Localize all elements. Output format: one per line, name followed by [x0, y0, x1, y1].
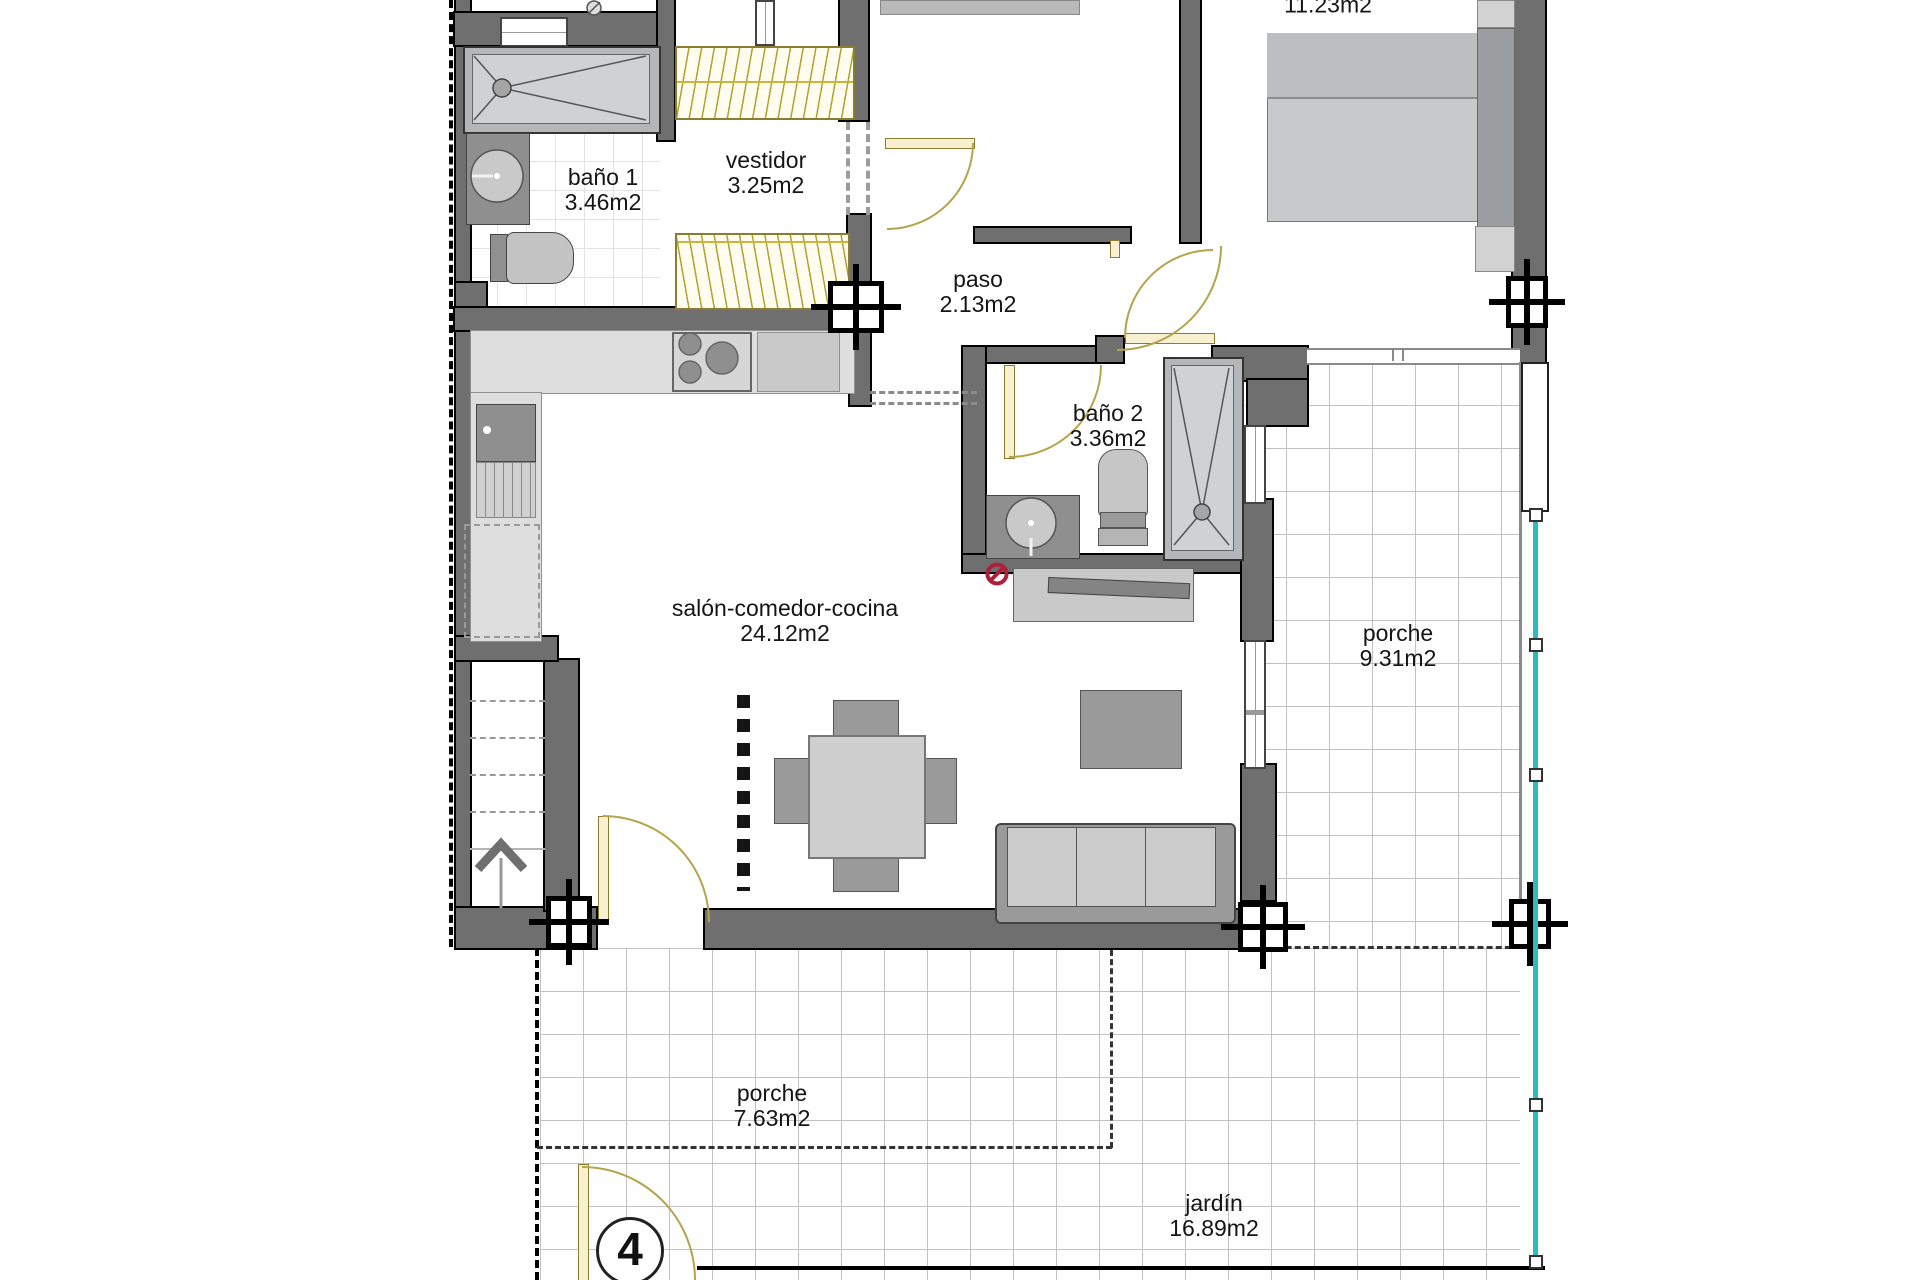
bed-sheet-band: [1267, 33, 1477, 99]
porche-frontal-boundary-right: [1110, 950, 1113, 1148]
room-label-porche-frontal: porche7.63m2: [734, 1081, 811, 1131]
column-symbol-paso: [828, 281, 884, 333]
porche-frontal-boundary-bottom: [537, 1146, 1112, 1149]
stair-tread-5: [470, 848, 545, 850]
garden-paving: [540, 948, 1520, 1280]
beam-dash-1: [870, 391, 977, 394]
bano1-toilet-bowl: [506, 232, 574, 284]
kitchen-dishwasher-dashed: [464, 524, 540, 638]
wall-right-low: [1242, 765, 1275, 900]
wall-corner-step: [1248, 380, 1307, 425]
garden-railing: [1533, 510, 1538, 1265]
vestidor-door-leaf: [885, 138, 975, 149]
railing-post: [1529, 1255, 1543, 1269]
railing-post: [1529, 508, 1543, 522]
nightstand-bottom: [1475, 226, 1515, 272]
bed-headboard: [1477, 28, 1515, 228]
bano2-sink-unit: [986, 495, 1080, 559]
porch-railing-tick2: [1402, 348, 1404, 361]
railing-post: [1529, 638, 1543, 652]
garden-gate-leaf: [578, 1164, 589, 1280]
room-label-vestidor: vestidor3.25m2: [726, 148, 807, 198]
stair-tread-3: [470, 774, 545, 776]
stair-tread-4: [470, 811, 545, 813]
porch-railing-top: [1307, 348, 1520, 365]
porch-corner-column: [1521, 362, 1549, 512]
kitchen-cooktop: [672, 332, 752, 392]
dining-table: [808, 735, 926, 859]
window-bano2-right: [1244, 425, 1266, 504]
room-divider-dotted-line: [737, 695, 750, 891]
dining-chair-top: [833, 700, 899, 740]
wardrobe-top: [675, 46, 855, 120]
room-label-bano2: baño 23.36m2: [1070, 401, 1147, 451]
top-room-furniture: [880, 0, 1080, 15]
sofa-cushion-2: [1076, 827, 1147, 907]
shower1-tray-inner: [472, 54, 650, 124]
paso-floor: [868, 0, 1181, 348]
dining-chair-left: [774, 758, 812, 824]
railing-post: [1529, 768, 1543, 782]
wall-dormitorio-left: [1181, 0, 1200, 242]
wall-right-mid: [1242, 500, 1272, 640]
bano2-paso-door-leaf: [1125, 333, 1215, 344]
nightstand-top: [1477, 0, 1515, 28]
garden-front-wall-line: [697, 1266, 1545, 1270]
bano2-door-leaf: [1004, 365, 1015, 459]
top-wall-vent-window: [755, 0, 775, 46]
stair-tread-2: [470, 737, 545, 739]
column-symbol-bedroom-right: [1506, 276, 1548, 328]
bano1-sink-unit: [466, 133, 530, 225]
stair-tread-1: [470, 700, 545, 702]
kitchen-oven: [757, 332, 840, 392]
entrance-door-leaf: [598, 816, 609, 924]
room-label-dormitorio: 11.23m2: [1284, 0, 1372, 18]
sofa-cushion-1: [1007, 827, 1078, 907]
room-label-bano1: baño 13.46m2: [565, 165, 642, 215]
wall-wing-right: [1513, 0, 1545, 278]
property-boundary-left: [449, 0, 453, 947]
floor-plan: baño 13.46m2 vestidor3.25m2 paso2.13m2 1…: [0, 0, 1920, 1280]
wall-bano2-top: [963, 347, 1111, 362]
property-boundary-left-lower: [535, 948, 539, 1280]
column-symbol-entry: [546, 896, 592, 948]
room-label-paso: paso2.13m2: [940, 267, 1017, 317]
unit-number-badge: 4: [596, 1217, 664, 1280]
wall-stairs-right: [545, 660, 578, 910]
bano2-toilet-bowl: [1098, 449, 1148, 517]
porch-railing-tick: [1392, 348, 1394, 361]
bano2-toilet-tank: [1098, 528, 1148, 546]
kitchen-sink-unit: [476, 404, 536, 462]
room-label-salon: salón-comedor-cocina24.12m2: [672, 596, 898, 646]
bano2-toilet-seat: [1100, 512, 1146, 528]
shower2-tray-inner: [1171, 365, 1234, 551]
sofa-cushion-3: [1145, 827, 1216, 907]
dormitorio-door-leaf: [1110, 240, 1120, 258]
column-symbol-salon-corner: [1238, 902, 1288, 952]
wall-dormitorio-bottom: [975, 228, 1130, 242]
window-bano1-top: [500, 17, 568, 47]
vestidor-opening-dashed: [846, 122, 870, 215]
room-label-porche-lateral: porche9.31m2: [1360, 621, 1437, 671]
railing-post: [1529, 1098, 1543, 1112]
wardrobe-bottom: [675, 233, 850, 310]
beam-dash-2: [870, 402, 977, 405]
coffee-table: [1080, 690, 1182, 769]
wall-bano2-door-jamb: [1097, 337, 1123, 362]
wall-kitchen-top: [455, 308, 870, 330]
column-symbol-porch-corner: [1509, 899, 1551, 949]
kitchen-drawers: [476, 462, 536, 518]
wall-bano2-left: [963, 347, 985, 572]
room-label-jardin: jardín16.89m2: [1169, 1191, 1259, 1241]
window-salon-right: [1244, 640, 1266, 769]
